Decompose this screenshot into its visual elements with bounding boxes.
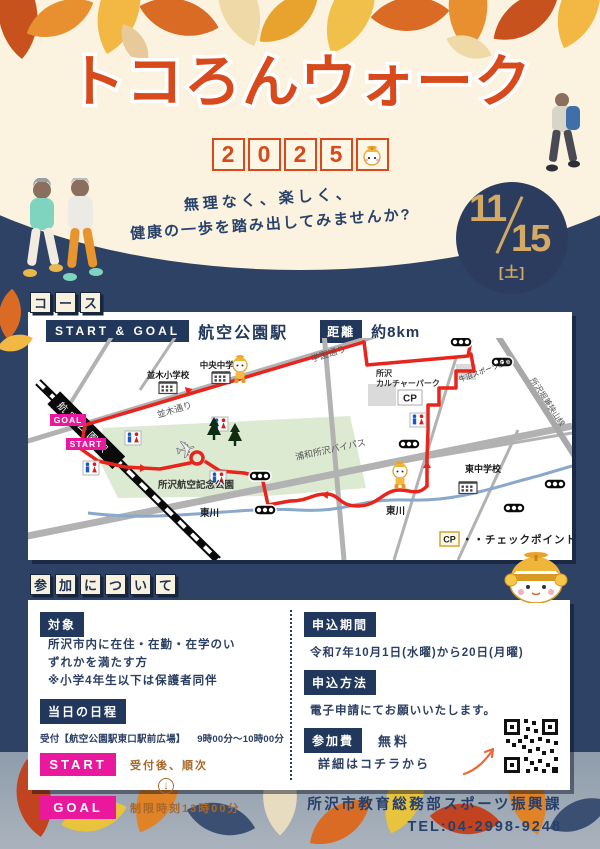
reception-time: 9時00分～10時00分 — [197, 734, 284, 745]
aviation-park-label: 所沢航空記念公園 — [158, 479, 234, 491]
event-poster: トコろんウォーク 2 0 2 5 無理なく、楽しく、 健康の一歩を踏み出してみま… — [0, 0, 600, 849]
restroom-icon — [83, 461, 99, 475]
participation-info-card: 対象 所沢市内に在住・在勤・在学のいずれかを満たす方 ※小学4年生以下は保護者同… — [28, 600, 570, 790]
restroom-icon — [410, 413, 426, 427]
target-body: 所沢市内に在住・在勤・在学のいずれかを満たす方 — [48, 639, 236, 669]
culture-park-label-1: 所沢 — [375, 368, 393, 378]
footer: 所沢市教育総務部スポーツ振興課 TEL:04-2998-9248 — [307, 793, 562, 835]
year-digit: 2 — [284, 138, 317, 171]
qr-code — [502, 717, 560, 780]
mascot-mini-icon — [356, 138, 389, 171]
higashigawa-label-right: 東川 — [385, 505, 405, 517]
horigane-sayama-label: 所沢堀兼狭山線 — [528, 376, 567, 428]
participation-label-char: 参 — [30, 574, 51, 595]
course-map-card: START & GOAL 航空公園駅 距離 約8km — [28, 312, 572, 560]
cp-legend-box: CP — [443, 535, 456, 545]
mascot-face-icon — [359, 142, 385, 168]
restroom-icon — [125, 431, 141, 445]
poster-title: トコろんウォーク — [0, 36, 600, 118]
fee-heading: 参加費 — [304, 728, 362, 753]
cp-marker-label: CP — [403, 394, 417, 405]
info-left-column: 対象 所沢市内に在住・在勤・在学のいずれかを満たす方 ※小学4年生以下は保護者同… — [28, 600, 290, 790]
course-label-char: ー — [55, 292, 76, 313]
period-heading: 申込期間 — [304, 612, 376, 637]
mascot-walker-icon — [393, 461, 407, 489]
school-building-icon — [459, 483, 477, 494]
organizer-name: 所沢市教育総務部スポーツ振興課 — [307, 793, 562, 814]
goal-chip: GOAL — [40, 796, 116, 819]
year-row: 2 0 2 5 — [0, 138, 600, 171]
start-chip: START — [40, 753, 116, 776]
period-value: 令和7年10月1日(水曜)から20日(月曜) — [310, 644, 558, 660]
participation-label-char: つ — [105, 574, 126, 595]
course-label-char: ス — [80, 292, 101, 313]
cp-legend-text: ・・チェックポイント — [462, 533, 572, 546]
target-heading: 対象 — [40, 612, 84, 637]
traffic-signal-icon — [503, 503, 525, 513]
higashigawa-label-left: 東川 — [199, 507, 219, 519]
organizer-phone: TEL:04-2998-9248 — [307, 819, 562, 835]
arrow-to-qr-icon — [462, 746, 498, 776]
participation-label-char: い — [130, 574, 151, 595]
traffic-signal-icon — [450, 338, 472, 347]
svg-text:GOAL: GOAL — [54, 415, 83, 425]
svg-text:START: START — [70, 439, 103, 449]
goal-note: 制限時刻13時00分 — [130, 800, 240, 816]
traffic-signal-icon — [254, 505, 276, 515]
target-note: ※小学4年生以下は保護者同伴 — [48, 675, 218, 687]
course-section-label: コ ー ス — [30, 292, 101, 313]
date-day: 15 — [511, 218, 549, 261]
reception-place: 受付【航空公園駅東口駅前広場】 — [40, 734, 186, 745]
fee-value: 無料 — [378, 731, 410, 750]
school-building-icon — [159, 383, 177, 394]
year-digit: 2 — [212, 138, 245, 171]
start-tag: START — [66, 438, 106, 450]
culture-park-label-2: カルチャーパーク — [376, 378, 440, 388]
method-value: 電子申請にてお願いいたします。 — [310, 702, 558, 718]
namiki-elementary-label: 並木小学校 — [147, 370, 190, 380]
traffic-signal-icon — [544, 479, 566, 489]
traffic-signal-icon — [398, 439, 420, 449]
participation-label-char: 加 — [55, 574, 76, 595]
goal-tag: GOAL — [50, 414, 86, 426]
course-label-char: コ — [30, 292, 51, 313]
schedule-heading: 当日の日程 — [40, 699, 126, 724]
mascot-walker-icon — [233, 355, 247, 383]
course-map: 航空公園駅 — [28, 338, 572, 560]
start-note: 受付後、順次 — [130, 757, 208, 773]
qr-note: 詳細はコチラから — [318, 755, 430, 772]
date-weekday: [土] — [456, 262, 568, 282]
participation-section-label: 参 加 に つ い て — [30, 574, 176, 595]
traffic-signal-icon — [249, 471, 271, 481]
participation-label-char: に — [80, 574, 101, 595]
year-digit: 5 — [320, 138, 353, 171]
mascot-head-illustration — [503, 547, 569, 603]
year-digit: 0 — [248, 138, 281, 171]
info-right-column: 申込期間 令和7年10月1日(水曜)から20日(月曜) 申込方法 電子申請にてお… — [292, 600, 570, 790]
school-building-icon — [212, 373, 230, 384]
higashi-junior-high-label: 東中学校 — [465, 463, 502, 474]
cp-legend: CP ・・チェックポイント — [440, 532, 572, 546]
participation-label-char: て — [155, 574, 176, 595]
method-heading: 申込方法 — [304, 670, 376, 695]
